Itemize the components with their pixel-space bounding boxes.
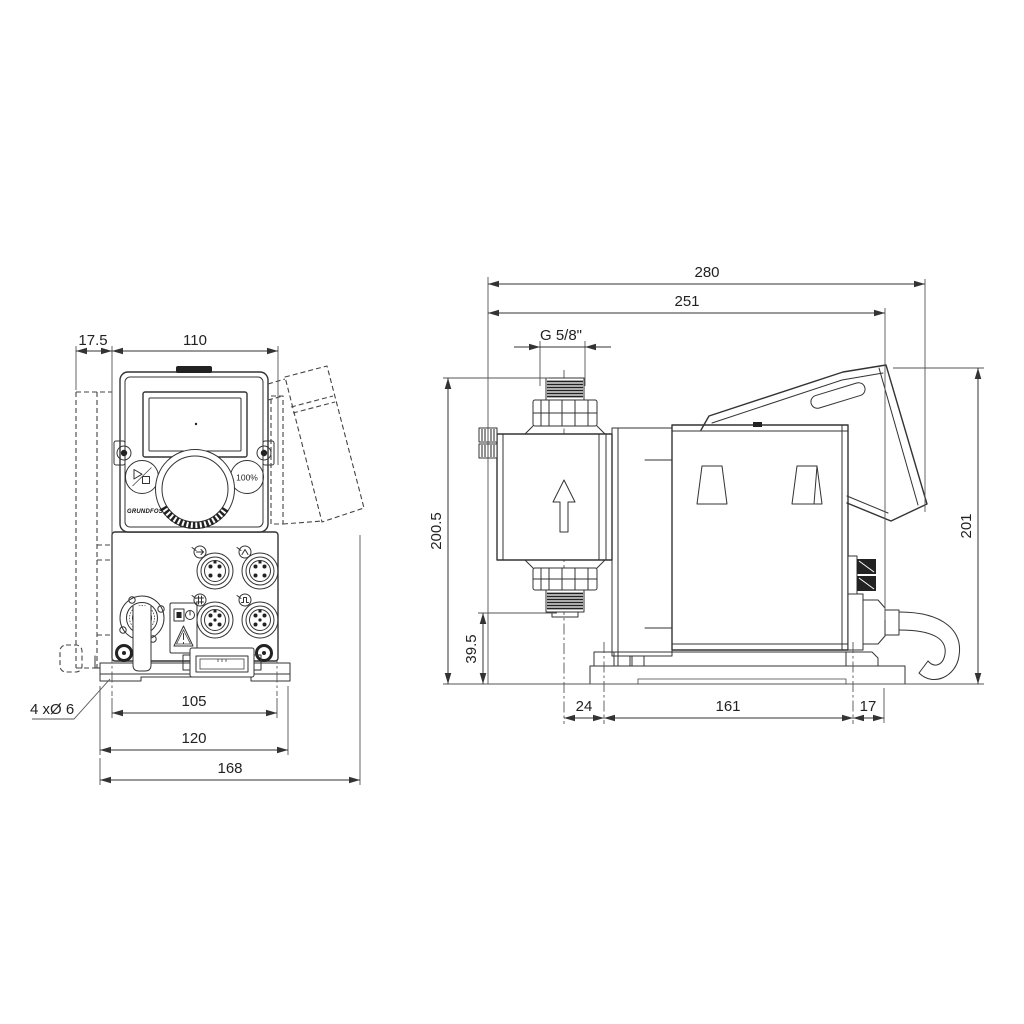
grundfos-logo: GRUNDFOS bbox=[127, 509, 163, 515]
drain-hose bbox=[133, 606, 151, 671]
svg-text:24: 24 bbox=[576, 698, 593, 715]
svg-text:39.5: 39.5 bbox=[463, 634, 480, 663]
svg-text:200.5: 200.5 bbox=[428, 512, 445, 550]
cube-top-tab bbox=[176, 366, 212, 373]
svg-text:201: 201 bbox=[958, 513, 975, 538]
svg-text:G 5/8": G 5/8" bbox=[540, 327, 582, 344]
svg-text:168: 168 bbox=[217, 760, 242, 777]
svg-text:17.5: 17.5 bbox=[78, 332, 107, 349]
svg-text:251: 251 bbox=[674, 293, 699, 310]
cable-gland bbox=[848, 594, 899, 650]
display-pixel bbox=[195, 423, 197, 425]
svg-text:161: 161 bbox=[715, 698, 740, 715]
clamp-lock bbox=[183, 648, 261, 677]
dim-suction-height: 39.5 bbox=[463, 613, 557, 684]
dim-wall-offset: 17.5 bbox=[76, 332, 112, 660]
drive-housing bbox=[672, 422, 848, 650]
dim-foot-length: 161 bbox=[604, 698, 853, 718]
dim-mounting-holes: 4 xØ 6 bbox=[30, 679, 110, 719]
capacity-100-label: 100% bbox=[236, 473, 258, 483]
side-view: 280 251 G 5/8" 200.5 3 bbox=[428, 264, 984, 724]
svg-text:105: 105 bbox=[181, 693, 206, 710]
control-cube: 100% GRUNDFOS bbox=[114, 366, 274, 532]
dim-head-to-foot: 24 bbox=[564, 698, 604, 718]
suction-connection bbox=[533, 568, 597, 617]
signal-connector bbox=[848, 556, 876, 594]
front-view: 100% GRUNDFOS bbox=[30, 332, 364, 785]
dim-foot-to-rear: 17 bbox=[853, 688, 884, 723]
wall-mounting-plate bbox=[60, 392, 112, 672]
click-wheel[interactable] bbox=[156, 450, 235, 529]
dim-connection-thread: G 5/8" bbox=[514, 327, 611, 386]
warning-label bbox=[170, 603, 197, 653]
dosing-pump-dimension-drawing: 100% GRUNDFOS bbox=[0, 0, 1024, 1024]
adapter-bracket bbox=[612, 428, 672, 656]
svg-text:120: 120 bbox=[181, 730, 206, 747]
dimensional-drawing-page: 100% GRUNDFOS bbox=[0, 0, 1024, 1024]
svg-text:280: 280 bbox=[694, 264, 719, 281]
mounting-foot-side bbox=[590, 642, 905, 724]
discharge-connection bbox=[525, 378, 605, 434]
control-cube-hood-hidden bbox=[268, 366, 364, 524]
housing-top-tab bbox=[753, 422, 762, 427]
power-cable bbox=[899, 612, 960, 679]
hood-handle bbox=[809, 381, 866, 410]
dim-hole-spacing: 105 bbox=[112, 693, 277, 718]
svg-text:4 xØ 6: 4 xØ 6 bbox=[30, 701, 74, 718]
svg-text:17: 17 bbox=[860, 698, 877, 715]
svg-text:110: 110 bbox=[183, 332, 207, 349]
dim-hood-height: 201 bbox=[893, 368, 984, 684]
